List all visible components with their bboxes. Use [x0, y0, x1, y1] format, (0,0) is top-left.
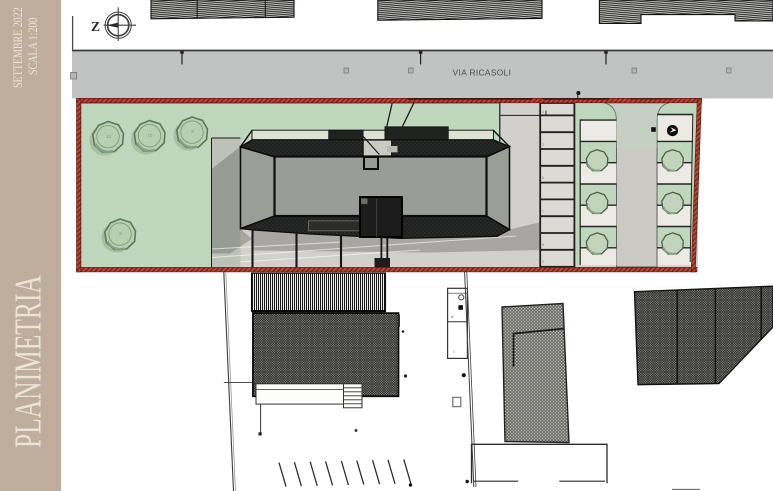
- svg-text:PLANIMETRIA: PLANIMETRIA: [8, 275, 50, 448]
- svg-text:10: 10: [106, 134, 112, 139]
- svg-text:10: 10: [147, 133, 153, 138]
- svg-text:SETTEMBRE 2022: SETTEMBRE 2022: [11, 7, 26, 88]
- svg-text:SCALA 1:200: SCALA 1:200: [26, 17, 41, 75]
- svg-text:Z: Z: [91, 19, 100, 34]
- svg-text:i: i: [454, 349, 455, 354]
- svg-text:VIA RICASOLI: VIA RICASOLI: [453, 67, 512, 77]
